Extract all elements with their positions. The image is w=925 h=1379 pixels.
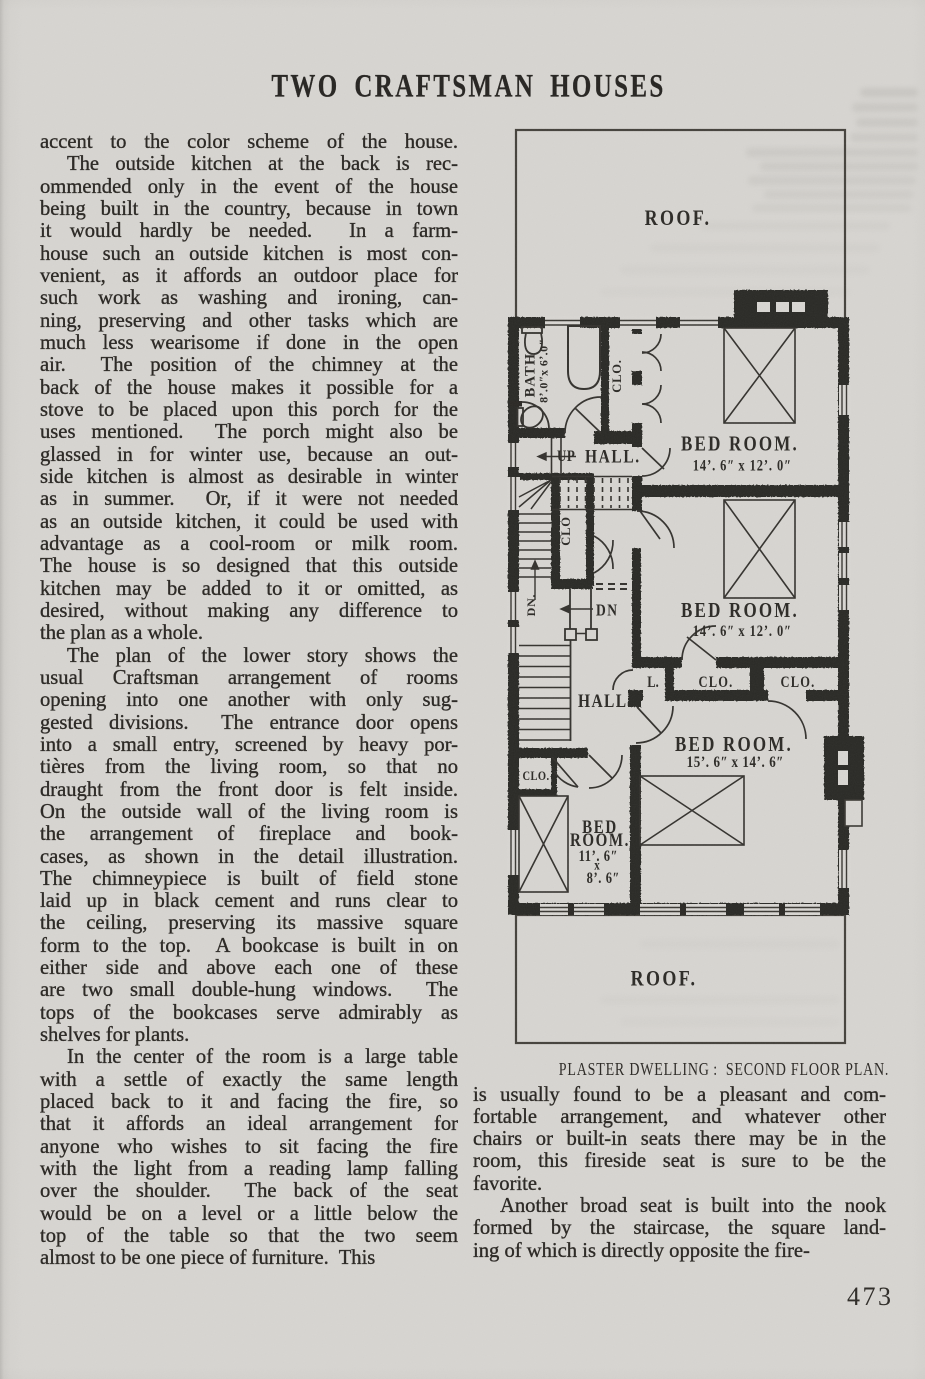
svg-text:CLO.: CLO. xyxy=(781,674,816,692)
svg-text:CLO.: CLO. xyxy=(699,674,734,692)
svg-text:DN.: DN. xyxy=(524,594,538,617)
svg-text:BED ROOM.: BED ROOM. xyxy=(681,433,799,456)
svg-text:14ʼ. 6ʺ x 12ʼ. 0ʺ: 14ʼ. 6ʺ x 12ʼ. 0ʺ xyxy=(693,457,791,475)
svg-text:ROOF.: ROOF. xyxy=(645,206,712,230)
svg-text:HALL.: HALL. xyxy=(585,445,641,467)
svg-text:8ʼ.0ʺx 6ʼ.0ʺ: 8ʼ.0ʺx 6ʼ.0ʺ xyxy=(537,339,551,403)
svg-text:14ʼ. 6ʺ x 12ʼ. 0ʺ: 14ʼ. 6ʺ x 12ʼ. 0ʺ xyxy=(693,623,791,641)
svg-text:UP: UP xyxy=(557,448,575,466)
svg-text:CLO.: CLO. xyxy=(610,359,624,392)
svg-text:CLO: CLO xyxy=(559,516,573,546)
svg-text:DN: DN xyxy=(596,601,618,620)
svg-text:HALL.: HALL. xyxy=(578,689,633,711)
svg-text:CLO.: CLO. xyxy=(523,768,550,783)
svg-text:ROOF.: ROOF. xyxy=(631,967,698,991)
svg-text:8ʼ. 6ʺ: 8ʼ. 6ʺ xyxy=(587,870,620,888)
svg-text:15ʼ. 6ʺ x 14ʼ. 6ʺ: 15ʼ. 6ʺ x 14ʼ. 6ʺ xyxy=(687,754,784,772)
svg-text:BED ROOM.: BED ROOM. xyxy=(681,599,799,622)
svg-text:L.: L. xyxy=(647,674,658,692)
